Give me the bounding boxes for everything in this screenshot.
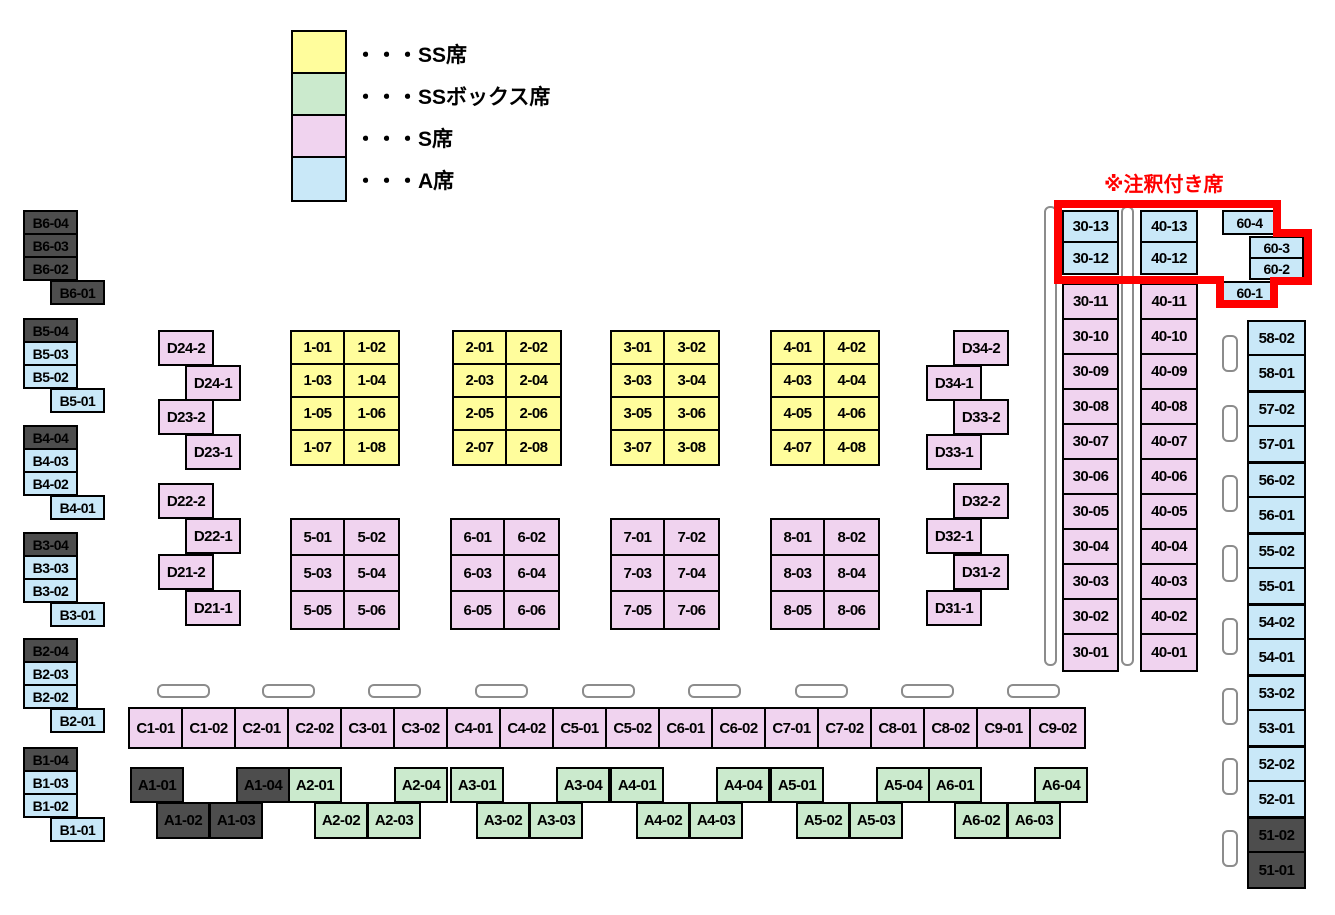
seat-30-12[interactable]: 30-12 bbox=[1062, 241, 1119, 275]
seat-5-03[interactable]: 5-03 bbox=[292, 556, 345, 592]
seat-3-05[interactable]: 3-05 bbox=[612, 398, 665, 431]
seat-B5-04: B5-04 bbox=[23, 318, 78, 343]
seat-B3-01[interactable]: B3-01 bbox=[50, 602, 105, 627]
aisle-marker bbox=[1222, 688, 1238, 725]
seat-57-01[interactable]: 57-01 bbox=[1249, 427, 1304, 461]
seat-D22-2[interactable]: D22-2 bbox=[158, 483, 214, 519]
seat-B2-03[interactable]: B2-03 bbox=[23, 661, 78, 686]
seat-D22-1[interactable]: D22-1 bbox=[185, 518, 241, 554]
seat-D23-2[interactable]: D23-2 bbox=[158, 399, 214, 435]
seat-3-07[interactable]: 3-07 bbox=[612, 431, 665, 464]
seat-1-05[interactable]: 1-05 bbox=[292, 398, 345, 431]
seat-40-06[interactable]: 40-06 bbox=[1142, 460, 1196, 495]
aisle-marker bbox=[1222, 335, 1238, 372]
seat-B1-03[interactable]: B1-03 bbox=[23, 770, 78, 795]
seat-51-01: 51-01 bbox=[1249, 853, 1304, 887]
seat-C3-02[interactable]: C3-02 bbox=[395, 709, 448, 747]
seat-60-4[interactable]: 60-4 bbox=[1222, 210, 1277, 235]
seat-6-01[interactable]: 6-01 bbox=[452, 520, 505, 556]
seat-A4-01[interactable]: A4-01 bbox=[610, 767, 664, 803]
seat-40-01[interactable]: 40-01 bbox=[1142, 635, 1196, 670]
seat-1-02[interactable]: 1-02 bbox=[345, 332, 398, 365]
seat-C9-02[interactable]: C9-02 bbox=[1031, 709, 1084, 747]
legend-label-a: ・・・A席 bbox=[355, 165, 454, 195]
seat-5-02[interactable]: 5-02 bbox=[345, 520, 398, 556]
seat-A2-02[interactable]: A2-02 bbox=[314, 802, 368, 839]
seat-40-12[interactable]: 40-12 bbox=[1140, 241, 1198, 275]
seat-D33-2[interactable]: D33-2 bbox=[953, 399, 1009, 435]
seat-7-04[interactable]: 7-04 bbox=[665, 556, 718, 592]
seat-2-08[interactable]: 2-08 bbox=[507, 431, 560, 464]
seat-C1-02[interactable]: C1-02 bbox=[183, 709, 236, 747]
seat-2-03[interactable]: 2-03 bbox=[454, 365, 507, 398]
seat-A6-01[interactable]: A6-01 bbox=[928, 767, 982, 803]
seat-D21-2[interactable]: D21-2 bbox=[158, 554, 214, 590]
seat-4-02[interactable]: 4-02 bbox=[825, 332, 878, 365]
seat-5-06[interactable]: 5-06 bbox=[345, 592, 398, 628]
seat-A2-01[interactable]: A2-01 bbox=[288, 767, 342, 803]
seat-54-02[interactable]: 54-02 bbox=[1249, 606, 1304, 640]
seat-40-04[interactable]: 40-04 bbox=[1142, 530, 1196, 565]
seat-55-02[interactable]: 55-02 bbox=[1249, 535, 1304, 569]
seat-B4-02[interactable]: B4-02 bbox=[23, 471, 78, 496]
seat-30-07[interactable]: 30-07 bbox=[1064, 425, 1117, 460]
seat-30-03[interactable]: 30-03 bbox=[1064, 565, 1117, 600]
seat-A5-02[interactable]: A5-02 bbox=[796, 802, 850, 839]
aisle-marker bbox=[1222, 475, 1238, 512]
seat-3-03[interactable]: 3-03 bbox=[612, 365, 665, 398]
seat-A3-04[interactable]: A3-04 bbox=[556, 767, 610, 803]
seat-C9-01[interactable]: C9-01 bbox=[978, 709, 1031, 747]
seat-B1-01[interactable]: B1-01 bbox=[50, 817, 105, 842]
seat-40-13[interactable]: 40-13 bbox=[1140, 210, 1198, 243]
seat-30-06[interactable]: 30-06 bbox=[1064, 460, 1117, 495]
seat-3-01[interactable]: 3-01 bbox=[612, 332, 665, 365]
seat-block: 8-018-028-038-048-058-06 bbox=[770, 518, 880, 630]
seat-30-10[interactable]: 30-10 bbox=[1064, 320, 1117, 355]
seat-block: 5-015-025-035-045-055-06 bbox=[290, 518, 400, 630]
seat-30-05[interactable]: 30-05 bbox=[1064, 495, 1117, 530]
seat-block: 40-1140-1040-0940-0840-0740-0640-0540-04… bbox=[1140, 283, 1198, 672]
seat-7-03[interactable]: 7-03 bbox=[612, 556, 665, 592]
seat-A5-01[interactable]: A5-01 bbox=[770, 767, 824, 803]
seat-8-06[interactable]: 8-06 bbox=[825, 592, 878, 628]
seat-A1-02: A1-02 bbox=[156, 802, 210, 839]
seat-B4-04: B4-04 bbox=[23, 425, 78, 450]
aisle-marker bbox=[368, 684, 421, 698]
aisle-marker bbox=[901, 684, 954, 698]
seat-30-01[interactable]: 30-01 bbox=[1064, 635, 1117, 670]
legend-swatch-a bbox=[293, 158, 345, 200]
legend-swatch-ss_box bbox=[293, 74, 345, 116]
legend-label-ss: ・・・SS席 bbox=[355, 39, 467, 69]
seat-2-01[interactable]: 2-01 bbox=[454, 332, 507, 365]
seat-1-04[interactable]: 1-04 bbox=[345, 365, 398, 398]
seat-1-03[interactable]: 1-03 bbox=[292, 365, 345, 398]
seat-7-06[interactable]: 7-06 bbox=[665, 592, 718, 628]
seat-C6-01[interactable]: C6-01 bbox=[660, 709, 713, 747]
seat-60-2[interactable]: 60-2 bbox=[1249, 257, 1304, 280]
seat-60-1[interactable]: 60-1 bbox=[1222, 281, 1277, 304]
seat-C2-02[interactable]: C2-02 bbox=[289, 709, 342, 747]
seat-C8-02[interactable]: C8-02 bbox=[925, 709, 978, 747]
seat-2-04[interactable]: 2-04 bbox=[507, 365, 560, 398]
seat-1-01[interactable]: 1-01 bbox=[292, 332, 345, 365]
seat-58-01[interactable]: 58-01 bbox=[1249, 356, 1304, 390]
seat-4-03[interactable]: 4-03 bbox=[772, 365, 825, 398]
seat-55-01[interactable]: 55-01 bbox=[1249, 569, 1304, 603]
seat-block: 4-014-024-034-044-054-064-074-08 bbox=[770, 330, 880, 466]
seat-D32-2[interactable]: D32-2 bbox=[953, 483, 1009, 519]
seat-4-06[interactable]: 4-06 bbox=[825, 398, 878, 431]
aisle-marker bbox=[1222, 758, 1238, 795]
seat-53-01[interactable]: 53-01 bbox=[1249, 711, 1304, 745]
seat-40-07[interactable]: 40-07 bbox=[1142, 425, 1196, 460]
legend-swatch-column bbox=[291, 30, 347, 202]
seat-B4-03[interactable]: B4-03 bbox=[23, 448, 78, 473]
seat-D24-1[interactable]: D24-1 bbox=[185, 365, 241, 401]
seat-block: 51-0251-01 bbox=[1247, 817, 1306, 889]
seat-B5-03[interactable]: B5-03 bbox=[23, 341, 78, 366]
seat-56-02[interactable]: 56-02 bbox=[1249, 464, 1304, 498]
seat-C6-02[interactable]: C6-02 bbox=[713, 709, 766, 747]
seat-2-05[interactable]: 2-05 bbox=[454, 398, 507, 431]
seat-2-06[interactable]: 2-06 bbox=[507, 398, 560, 431]
seat-7-01[interactable]: 7-01 bbox=[612, 520, 665, 556]
seat-4-04[interactable]: 4-04 bbox=[825, 365, 878, 398]
seat-block: 54-0254-01 bbox=[1247, 604, 1306, 676]
seat-8-01[interactable]: 8-01 bbox=[772, 520, 825, 556]
seat-4-07[interactable]: 4-07 bbox=[772, 431, 825, 464]
aisle-marker bbox=[1222, 405, 1238, 442]
seat-8-04[interactable]: 8-04 bbox=[825, 556, 878, 592]
aisle-marker bbox=[1222, 618, 1238, 655]
seat-A1-04: A1-04 bbox=[236, 767, 290, 803]
seat-53-02[interactable]: 53-02 bbox=[1249, 677, 1304, 711]
seat-6-02[interactable]: 6-02 bbox=[505, 520, 558, 556]
seat-block: 56-0256-01 bbox=[1247, 462, 1306, 534]
seat-block: 57-0257-01 bbox=[1247, 391, 1306, 463]
seat-A4-02[interactable]: A4-02 bbox=[636, 802, 690, 839]
aisle-marker bbox=[262, 684, 315, 698]
seat-40-05[interactable]: 40-05 bbox=[1142, 495, 1196, 530]
aisle-marker bbox=[1222, 545, 1238, 582]
seat-5-01[interactable]: 5-01 bbox=[292, 520, 345, 556]
seat-4-05[interactable]: 4-05 bbox=[772, 398, 825, 431]
seat-D23-1[interactable]: D23-1 bbox=[185, 434, 241, 470]
seat-40-08[interactable]: 40-08 bbox=[1142, 390, 1196, 425]
seat-A5-03[interactable]: A5-03 bbox=[849, 802, 903, 839]
seat-40-10[interactable]: 40-10 bbox=[1142, 320, 1196, 355]
seat-A1-03: A1-03 bbox=[209, 802, 263, 839]
seat-1-08[interactable]: 1-08 bbox=[345, 431, 398, 464]
seat-block: 3-013-023-033-043-053-063-073-08 bbox=[610, 330, 720, 466]
seat-4-08[interactable]: 4-08 bbox=[825, 431, 878, 464]
seat-D21-1[interactable]: D21-1 bbox=[185, 590, 241, 626]
seat-58-02[interactable]: 58-02 bbox=[1249, 322, 1304, 356]
seat-B3-04: B3-04 bbox=[23, 532, 78, 557]
seat-D34-1[interactable]: D34-1 bbox=[926, 365, 982, 401]
seat-1-06[interactable]: 1-06 bbox=[345, 398, 398, 431]
seat-30-08[interactable]: 30-08 bbox=[1064, 390, 1117, 425]
seat-3-02[interactable]: 3-02 bbox=[665, 332, 718, 365]
seat-A6-02[interactable]: A6-02 bbox=[954, 802, 1008, 839]
seat-C8-01[interactable]: C8-01 bbox=[872, 709, 925, 747]
seat-A4-03[interactable]: A4-03 bbox=[689, 802, 743, 839]
seat-block: 53-0253-01 bbox=[1247, 675, 1306, 747]
seat-B5-02[interactable]: B5-02 bbox=[23, 364, 78, 389]
seat-3-08[interactable]: 3-08 bbox=[665, 431, 718, 464]
seat-block: 30-1130-1030-0930-0830-0730-0630-0530-04… bbox=[1062, 283, 1119, 672]
aisle-marker bbox=[795, 684, 848, 698]
seat-block: 2-012-022-032-042-052-062-072-08 bbox=[452, 330, 562, 466]
seat-8-05[interactable]: 8-05 bbox=[772, 592, 825, 628]
seat-B4-01[interactable]: B4-01 bbox=[50, 495, 105, 520]
aisle-marker bbox=[582, 684, 635, 698]
seat-B2-01[interactable]: B2-01 bbox=[50, 708, 105, 733]
seat-30-11[interactable]: 30-11 bbox=[1064, 285, 1117, 320]
seat-B2-04: B2-04 bbox=[23, 638, 78, 663]
seat-C1-01[interactable]: C1-01 bbox=[130, 709, 183, 747]
seat-map: ・・・SS席・・・SSボックス席・・・S席・・・A席 ※注釈付き席 B6-04B… bbox=[0, 0, 1335, 915]
seat-8-02[interactable]: 8-02 bbox=[825, 520, 878, 556]
seat-D31-2[interactable]: D31-2 bbox=[953, 554, 1009, 590]
seat-30-13[interactable]: 30-13 bbox=[1062, 210, 1119, 243]
seat-7-02[interactable]: 7-02 bbox=[665, 520, 718, 556]
seat-C4-01[interactable]: C4-01 bbox=[448, 709, 501, 747]
seat-block: 58-0258-01 bbox=[1247, 320, 1306, 392]
seat-B6-01: B6-01 bbox=[50, 280, 105, 305]
seat-A1-01: A1-01 bbox=[130, 767, 184, 803]
seat-40-11[interactable]: 40-11 bbox=[1142, 285, 1196, 320]
seat-60-3[interactable]: 60-3 bbox=[1249, 236, 1304, 259]
seat-B1-04: B1-04 bbox=[23, 747, 78, 772]
seat-D24-2[interactable]: D24-2 bbox=[158, 330, 214, 366]
seat-52-01[interactable]: 52-01 bbox=[1249, 782, 1304, 816]
seat-B2-02[interactable]: B2-02 bbox=[23, 684, 78, 709]
aisle-marker bbox=[475, 684, 528, 698]
seat-2-07[interactable]: 2-07 bbox=[454, 431, 507, 464]
aisle-marker bbox=[1044, 206, 1057, 666]
legend: ・・・SS席・・・SSボックス席・・・S席・・・A席 bbox=[291, 30, 347, 202]
seat-D31-1[interactable]: D31-1 bbox=[926, 590, 982, 626]
seat-7-05[interactable]: 7-05 bbox=[612, 592, 665, 628]
seat-A3-02[interactable]: A3-02 bbox=[476, 802, 530, 839]
legend-swatch-ss bbox=[293, 32, 345, 74]
seat-C7-02[interactable]: C7-02 bbox=[819, 709, 872, 747]
seat-5-04[interactable]: 5-04 bbox=[345, 556, 398, 592]
seat-A6-04[interactable]: A6-04 bbox=[1034, 767, 1088, 803]
annotated-seats-label: ※注釈付き席 bbox=[1104, 168, 1223, 197]
seat-3-04[interactable]: 3-04 bbox=[665, 365, 718, 398]
seat-D34-2[interactable]: D34-2 bbox=[953, 330, 1009, 366]
seat-40-02[interactable]: 40-02 bbox=[1142, 600, 1196, 635]
seat-D33-1[interactable]: D33-1 bbox=[926, 434, 982, 470]
seat-2-02[interactable]: 2-02 bbox=[507, 332, 560, 365]
seat-B6-02: B6-02 bbox=[23, 256, 78, 281]
seat-52-02[interactable]: 52-02 bbox=[1249, 748, 1304, 782]
seat-40-09[interactable]: 40-09 bbox=[1142, 355, 1196, 390]
seat-C7-01[interactable]: C7-01 bbox=[766, 709, 819, 747]
seat-3-06[interactable]: 3-06 bbox=[665, 398, 718, 431]
seat-B6-04: B6-04 bbox=[23, 210, 78, 235]
legend-label-ss_box: ・・・SSボックス席 bbox=[355, 81, 550, 111]
seat-C3-01[interactable]: C3-01 bbox=[342, 709, 395, 747]
seat-A3-03[interactable]: A3-03 bbox=[529, 802, 583, 839]
seat-6-04[interactable]: 6-04 bbox=[505, 556, 558, 592]
aisle-marker bbox=[157, 684, 210, 698]
seat-A5-04[interactable]: A5-04 bbox=[876, 767, 930, 803]
seat-30-09[interactable]: 30-09 bbox=[1064, 355, 1117, 390]
seat-D32-1[interactable]: D32-1 bbox=[926, 518, 982, 554]
seat-6-05[interactable]: 6-05 bbox=[452, 592, 505, 628]
seat-A4-04[interactable]: A4-04 bbox=[716, 767, 770, 803]
seat-block: 52-0252-01 bbox=[1247, 746, 1306, 818]
seat-A6-03[interactable]: A6-03 bbox=[1007, 802, 1061, 839]
seat-B3-02[interactable]: B3-02 bbox=[23, 578, 78, 603]
seat-B3-03[interactable]: B3-03 bbox=[23, 555, 78, 580]
seat-C2-01[interactable]: C2-01 bbox=[236, 709, 289, 747]
seat-C5-02[interactable]: C5-02 bbox=[607, 709, 660, 747]
seat-40-03[interactable]: 40-03 bbox=[1142, 565, 1196, 600]
seat-A3-01[interactable]: A3-01 bbox=[450, 767, 504, 803]
seat-1-07[interactable]: 1-07 bbox=[292, 431, 345, 464]
seat-57-02[interactable]: 57-02 bbox=[1249, 393, 1304, 427]
seat-A2-04[interactable]: A2-04 bbox=[394, 767, 448, 803]
seat-30-02[interactable]: 30-02 bbox=[1064, 600, 1117, 635]
seat-56-01[interactable]: 56-01 bbox=[1249, 498, 1304, 532]
seat-block: 6-016-026-036-046-056-06 bbox=[450, 518, 560, 630]
seat-B1-02[interactable]: B1-02 bbox=[23, 793, 78, 818]
aisle-marker bbox=[1121, 206, 1134, 666]
seat-8-03[interactable]: 8-03 bbox=[772, 556, 825, 592]
seat-A2-03[interactable]: A2-03 bbox=[367, 802, 421, 839]
seat-C4-02[interactable]: C4-02 bbox=[501, 709, 554, 747]
seat-B6-03: B6-03 bbox=[23, 233, 78, 258]
seat-54-01[interactable]: 54-01 bbox=[1249, 640, 1304, 674]
seat-block: 1-011-021-031-041-051-061-071-08 bbox=[290, 330, 400, 466]
seat-block: 55-0255-01 bbox=[1247, 533, 1306, 605]
seat-51-02: 51-02 bbox=[1249, 819, 1304, 853]
seat-C5-01[interactable]: C5-01 bbox=[554, 709, 607, 747]
seat-block: 7-017-027-037-047-057-06 bbox=[610, 518, 720, 630]
aisle-marker bbox=[1222, 830, 1238, 867]
seat-B5-01[interactable]: B5-01 bbox=[50, 388, 105, 413]
aisle-marker bbox=[688, 684, 741, 698]
seat-block: C1-01C1-02C2-01C2-02C3-01C3-02C4-01C4-02… bbox=[128, 707, 1086, 749]
seat-5-05[interactable]: 5-05 bbox=[292, 592, 345, 628]
seat-30-04[interactable]: 30-04 bbox=[1064, 530, 1117, 565]
legend-swatch-s bbox=[293, 116, 345, 158]
aisle-marker bbox=[1007, 684, 1060, 698]
seat-6-06[interactable]: 6-06 bbox=[505, 592, 558, 628]
seat-6-03[interactable]: 6-03 bbox=[452, 556, 505, 592]
legend-label-s: ・・・S席 bbox=[355, 123, 453, 153]
seat-4-01[interactable]: 4-01 bbox=[772, 332, 825, 365]
